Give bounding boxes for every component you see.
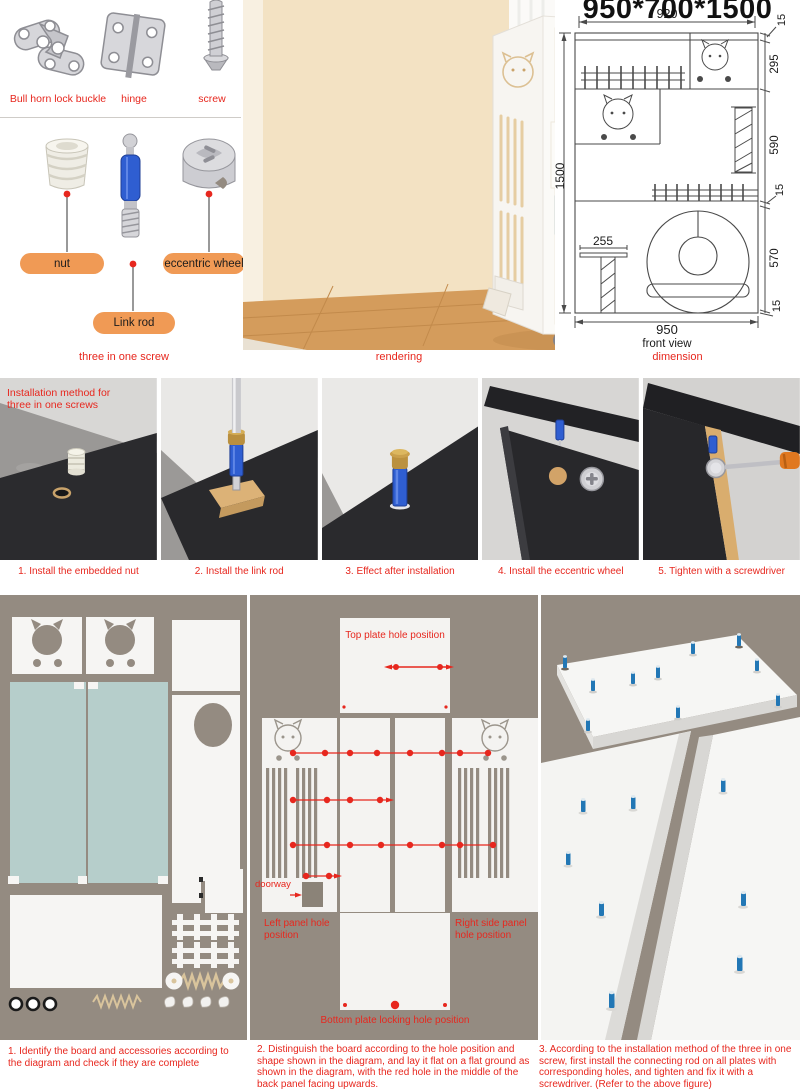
doorway-label: doorway: [255, 879, 299, 891]
svg-text:front view: front view: [642, 338, 692, 350]
nut-tag: nut: [20, 253, 104, 274]
lock-buckle-label: Bull horn lock buckle: [2, 93, 114, 105]
bottom-plate-hole-label: Bottom plate locking hole position: [300, 1015, 490, 1027]
lock-buckle-icon: [10, 6, 88, 86]
hardware-parts-panel: Bull horn lock buckle hinge screw: [0, 0, 243, 120]
assembly-instruction-sheet: Bull horn lock buckle hinge screw: [0, 0, 800, 1091]
hole-position-diagram: [250, 595, 538, 1040]
assembly-caption-3: 3. According to the installation method …: [539, 1044, 795, 1090]
step-1-photo: Installation method for three in one scr…: [0, 378, 157, 560]
svg-text:950: 950: [656, 322, 678, 337]
step-captions-row: 1. Install the embedded nut 2. Install t…: [0, 566, 800, 577]
step-3-photo: [322, 378, 479, 560]
boards-with-pins-render: [541, 595, 800, 1040]
caster-parts: [10, 998, 56, 1010]
svg-text:15: 15: [771, 300, 783, 312]
nut-image: [46, 139, 88, 189]
small-door: [172, 872, 203, 903]
step-2-caption: 2. Install the link rod: [161, 566, 318, 577]
dimension-caption: dimension: [555, 351, 800, 363]
step-5-caption: 5. Tighten with a screwdriver: [643, 566, 800, 577]
eccentric-wheel-tag: eccentric wheel: [163, 253, 245, 274]
doorway-cutout: [302, 882, 323, 907]
link-rod-image: [121, 134, 140, 237]
svg-text:590: 590: [769, 135, 781, 154]
product-rendering-image: [243, 0, 555, 350]
svg-text:1500: 1500: [555, 162, 567, 189]
hinge-icon: [100, 8, 166, 82]
step-4-photo: [482, 378, 639, 560]
dimension-title: 950*700*1500: [555, 0, 800, 26]
svg-text:570: 570: [769, 248, 781, 267]
screw-icon: [196, 0, 236, 90]
svg-text:255: 255: [593, 234, 613, 248]
link-rod-tag: Link rod: [93, 312, 175, 334]
parts-overview-diagram: [0, 595, 247, 1040]
svg-text:15: 15: [774, 184, 786, 196]
right-panel-hole-label: Right side panel hole position: [455, 918, 545, 941]
step-4-caption: 4. Install the eccentric wheel: [482, 566, 639, 577]
step-2-photo: [161, 378, 318, 560]
steps-overlay-title: Installation method for three in one scr…: [7, 387, 132, 411]
left-panel-hole-label: Left panel hole position: [264, 918, 342, 941]
installed-link-rod: [390, 449, 410, 510]
acrylic-panels: [8, 682, 168, 884]
step-5-photo: [643, 378, 800, 560]
three-in-one-caption: three in one screw: [0, 351, 248, 363]
dimension-drawing: 255 920 950 front view 1500: [555, 0, 800, 350]
assembly-caption-1: 1. Identify the board and accessories ac…: [8, 1046, 242, 1069]
hinge-label: hinge: [108, 93, 160, 105]
eccentric-wheel-part: [581, 468, 604, 491]
cam-hole: [549, 467, 567, 485]
installation-steps-row: Installation method for three in one scr…: [0, 378, 800, 560]
assembly-caption-2: 2. Distinguish the board according to th…: [257, 1044, 534, 1090]
rendering-caption: rendering: [243, 351, 555, 363]
assembly-panels-row: [0, 595, 800, 1040]
embedded-nut: [68, 449, 85, 476]
top-plate-hole-label: Top plate hole position: [310, 630, 480, 642]
screw-label: screw: [184, 93, 240, 105]
eccentric-wheel-image: [183, 139, 235, 189]
step-3-caption: 3. Effect after installation: [322, 566, 479, 577]
step-1-caption: 1. Install the embedded nut: [0, 566, 157, 577]
svg-text:295: 295: [769, 54, 781, 73]
divider-line: [0, 117, 241, 118]
